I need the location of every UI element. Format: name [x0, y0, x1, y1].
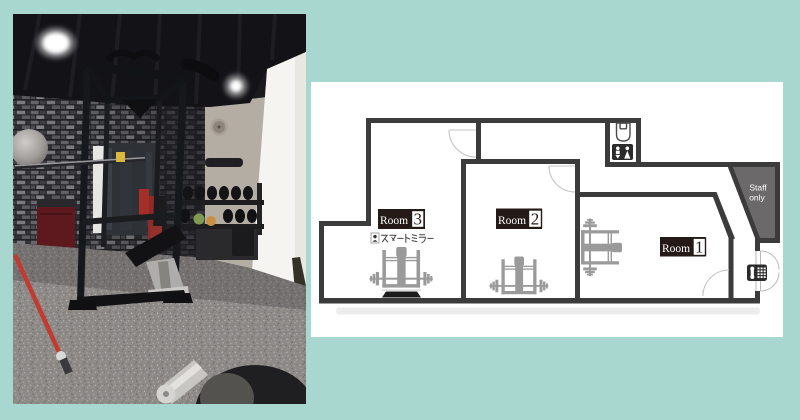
svg-text:3: 3 [414, 210, 423, 229]
svg-text:only: only [749, 193, 765, 203]
svg-text:Room: Room [498, 215, 526, 227]
svg-text:Room: Room [662, 243, 690, 255]
svg-text:2: 2 [531, 210, 540, 229]
svg-text:Room: Room [380, 215, 408, 227]
svg-text:1: 1 [695, 238, 704, 257]
svg-text:Staff: Staff [749, 183, 767, 193]
